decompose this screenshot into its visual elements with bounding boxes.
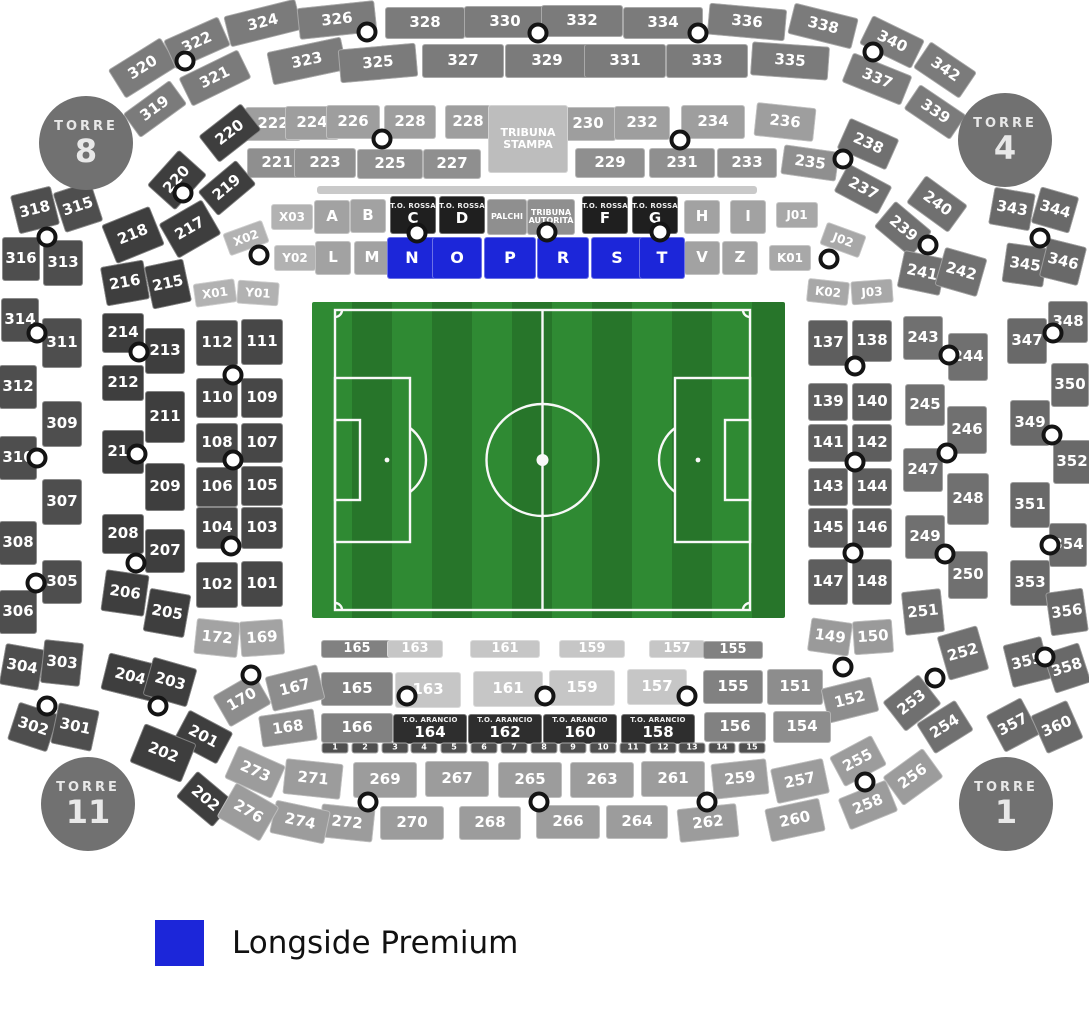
section-309[interactable]: 309	[42, 401, 82, 447]
section-260[interactable]: 260	[764, 798, 826, 843]
section-165[interactable]: 165	[321, 672, 393, 706]
gate-marker	[688, 23, 709, 44]
gate-marker	[1030, 228, 1051, 249]
gate-marker	[843, 543, 864, 564]
section-261[interactable]: 261	[641, 761, 705, 797]
section-140[interactable]: 140	[852, 383, 892, 421]
section-3[interactable]: 3	[382, 743, 409, 754]
section-259[interactable]: 259	[710, 758, 769, 800]
section-360[interactable]: 360	[1030, 700, 1084, 755]
section-243[interactable]: 243	[903, 316, 943, 360]
section-227[interactable]: 227	[423, 149, 481, 179]
section-248[interactable]: 248	[947, 473, 989, 525]
section-332[interactable]: 332	[541, 5, 623, 37]
section-d[interactable]: T.O. ROSSAD	[439, 196, 485, 234]
section-j01[interactable]: J01	[776, 202, 818, 228]
section-168[interactable]: 168	[258, 708, 318, 747]
section-308[interactable]: 308	[0, 521, 37, 565]
section-10[interactable]: 10	[590, 743, 617, 754]
section-325[interactable]: 325	[338, 43, 419, 84]
section-a[interactable]: A	[314, 200, 350, 234]
section-z[interactable]: Z	[722, 241, 758, 275]
section-149[interactable]: 149	[807, 617, 853, 657]
section-y02[interactable]: Y02	[274, 245, 316, 271]
section-1[interactable]: 1	[322, 743, 349, 754]
gate-marker	[221, 536, 242, 557]
section-347[interactable]: 347	[1007, 318, 1047, 364]
section-v[interactable]: V	[684, 241, 720, 275]
legend-swatch-longside-premium	[155, 920, 204, 966]
section-158[interactable]: T.O. ARANCIO158	[621, 714, 695, 744]
section-x03[interactable]: X03	[271, 204, 313, 230]
gate-marker	[37, 696, 58, 717]
gate-marker	[535, 686, 556, 707]
section-103[interactable]: 103	[241, 507, 283, 549]
section-233[interactable]: 233	[717, 148, 777, 178]
gate-marker	[407, 223, 428, 244]
section-353[interactable]: 353	[1010, 560, 1050, 606]
section-331[interactable]: 331	[584, 44, 666, 78]
section-145[interactable]: 145	[808, 508, 848, 548]
section-h[interactable]: H	[684, 200, 720, 234]
section-154[interactable]: 154	[773, 711, 831, 743]
section-9[interactable]: 9	[560, 743, 587, 754]
gate-marker	[173, 183, 194, 204]
section-172[interactable]: 172	[193, 618, 241, 658]
section-228[interactable]: 228	[445, 105, 491, 139]
section-270[interactable]: 270	[380, 806, 444, 840]
gate-marker	[537, 222, 558, 243]
section-7[interactable]: 7	[501, 743, 528, 754]
section-107[interactable]: 107	[241, 423, 283, 463]
section-j03[interactable]: J03	[850, 279, 894, 306]
legend-label: Longside Premium	[232, 925, 518, 961]
section-n[interactable]: N	[387, 237, 437, 279]
section-357[interactable]: 357	[985, 697, 1040, 753]
section-225[interactable]: 225	[357, 149, 423, 179]
section-l[interactable]: L	[315, 241, 351, 275]
legend: Longside Premium	[155, 920, 518, 966]
gate-marker	[863, 42, 884, 63]
section-162[interactable]: T.O. ARANCIO162	[468, 714, 542, 744]
section-i[interactable]: I	[730, 200, 766, 234]
gate-marker	[241, 665, 262, 686]
gate-marker	[529, 792, 550, 813]
tower-8: TORRE8	[39, 96, 133, 190]
section-151[interactable]: 151	[767, 669, 823, 705]
gate-marker	[223, 450, 244, 471]
section-167[interactable]: 167	[264, 664, 325, 712]
section-15[interactable]: 15	[739, 743, 766, 754]
section-311[interactable]: 311	[42, 318, 82, 368]
gate-marker	[127, 444, 148, 465]
section-101[interactable]: 101	[241, 561, 283, 607]
section-t[interactable]: T	[639, 237, 685, 279]
section-264[interactable]: 264	[606, 805, 668, 839]
section-147[interactable]: 147	[808, 559, 848, 605]
section-5[interactable]: 5	[441, 743, 468, 754]
gate-marker	[939, 345, 960, 366]
section-tribuna-stampa[interactable]: TRIBUNA STAMPA	[488, 105, 568, 173]
section-301[interactable]: 301	[50, 702, 100, 752]
section-139[interactable]: 139	[808, 383, 848, 421]
section-231[interactable]: 231	[649, 148, 715, 178]
section-112[interactable]: 112	[196, 320, 238, 366]
section-159[interactable]: 159	[549, 670, 615, 706]
gate-marker	[845, 356, 866, 377]
section-271[interactable]: 271	[282, 758, 343, 800]
gate-marker	[26, 573, 47, 594]
stadium-map: Longside Premium 31932032132232332432532…	[0, 0, 1089, 1032]
gate-marker	[372, 129, 393, 150]
section-209[interactable]: 209	[145, 463, 185, 511]
section-159[interactable]: 159	[559, 640, 625, 658]
section-6[interactable]: 6	[471, 743, 498, 754]
section-251[interactable]: 251	[901, 588, 945, 636]
gate-marker	[357, 22, 378, 43]
section-2[interactable]: 2	[352, 743, 379, 754]
section-208[interactable]: 208	[102, 514, 144, 554]
section-band[interactable]	[317, 186, 757, 194]
section-211[interactable]: 211	[145, 391, 185, 443]
section-y01[interactable]: Y01	[236, 280, 280, 307]
section-13[interactable]: 13	[679, 743, 706, 754]
tower-1: TORRE1	[959, 757, 1053, 851]
pitch-markings	[312, 302, 785, 618]
gate-marker	[175, 51, 196, 72]
tower-11: TORRE11	[41, 757, 135, 851]
section-234[interactable]: 234	[681, 105, 745, 139]
section-12[interactable]: 12	[650, 743, 677, 754]
section-268[interactable]: 268	[459, 806, 521, 840]
section-336[interactable]: 336	[707, 3, 787, 42]
section-137[interactable]: 137	[808, 320, 848, 366]
gate-marker	[126, 553, 147, 574]
section-350[interactable]: 350	[1051, 363, 1089, 407]
section-267[interactable]: 267	[425, 761, 489, 797]
gate-marker	[528, 23, 549, 44]
section-102[interactable]: 102	[196, 562, 238, 608]
gate-marker	[935, 544, 956, 565]
gate-marker	[925, 668, 946, 689]
section-156[interactable]: 156	[704, 712, 766, 742]
section-305[interactable]: 305	[42, 560, 82, 604]
section-207[interactable]: 207	[145, 529, 185, 573]
section-338[interactable]: 338	[787, 2, 859, 49]
section-x01[interactable]: X01	[193, 278, 238, 308]
section-161[interactable]: 161	[470, 640, 540, 658]
section-163[interactable]: 163	[387, 640, 443, 658]
gate-marker	[1035, 647, 1056, 668]
section-228[interactable]: 228	[384, 105, 436, 139]
section-213[interactable]: 213	[145, 328, 185, 374]
section-230[interactable]: 230	[560, 107, 616, 141]
section-106[interactable]: 106	[196, 467, 238, 507]
gate-marker	[650, 222, 671, 243]
section-4[interactable]: 4	[411, 743, 438, 754]
section-205[interactable]: 205	[142, 588, 191, 639]
section-343[interactable]: 343	[988, 187, 1036, 232]
gate-marker	[37, 227, 58, 248]
section-356[interactable]: 356	[1045, 588, 1089, 637]
section-144[interactable]: 144	[852, 468, 892, 506]
section-k01[interactable]: K01	[769, 245, 811, 271]
gate-marker	[1043, 323, 1064, 344]
section-215[interactable]: 215	[144, 258, 192, 309]
gate-marker	[833, 149, 854, 170]
section-218[interactable]: 218	[101, 206, 165, 264]
section-157[interactable]: 157	[649, 640, 705, 658]
gate-marker	[249, 245, 270, 266]
section-155[interactable]: 155	[703, 670, 763, 704]
section-165[interactable]: 165	[321, 640, 393, 658]
gate-marker	[833, 657, 854, 678]
section-303[interactable]: 303	[40, 639, 84, 687]
gate-marker	[918, 235, 939, 256]
section-150[interactable]: 150	[852, 619, 894, 656]
gate-marker	[845, 452, 866, 473]
section-237[interactable]: 237	[833, 163, 892, 215]
section-257[interactable]: 257	[770, 758, 830, 804]
section-312[interactable]: 312	[0, 365, 37, 409]
section-306[interactable]: 306	[0, 590, 37, 634]
gate-marker	[27, 323, 48, 344]
section-105[interactable]: 105	[241, 466, 283, 506]
section-329[interactable]: 329	[505, 44, 589, 78]
section-166[interactable]: 166	[321, 713, 393, 743]
section-327[interactable]: 327	[422, 44, 504, 78]
section-236[interactable]: 236	[753, 102, 816, 142]
gate-marker	[937, 443, 958, 464]
section-k02[interactable]: K02	[806, 278, 850, 306]
gate-marker	[670, 130, 691, 151]
gate-marker	[1042, 425, 1063, 446]
section-f[interactable]: T.O. ROSSAF	[582, 196, 628, 234]
gate-marker	[148, 696, 169, 717]
section-o[interactable]: O	[432, 237, 482, 279]
section-111[interactable]: 111	[241, 319, 283, 365]
section-143[interactable]: 143	[808, 468, 848, 506]
section-148[interactable]: 148	[852, 559, 892, 605]
section-109[interactable]: 109	[241, 378, 283, 418]
section-155[interactable]: 155	[703, 641, 763, 659]
section-160[interactable]: T.O. ARANCIO160	[543, 714, 617, 744]
section-223[interactable]: 223	[294, 148, 356, 178]
section-palchi[interactable]: PALCHI	[487, 199, 527, 235]
section-206[interactable]: 206	[100, 569, 149, 617]
gate-marker	[855, 772, 876, 793]
section-307[interactable]: 307	[42, 479, 82, 525]
section-352[interactable]: 352	[1053, 440, 1089, 484]
section-265[interactable]: 265	[498, 762, 562, 798]
section-164[interactable]: T.O. ARANCIO164	[393, 714, 467, 744]
section-s[interactable]: S	[591, 237, 643, 279]
section-242[interactable]: 242	[934, 247, 987, 298]
section-169[interactable]: 169	[239, 619, 285, 658]
section-m[interactable]: M	[354, 241, 390, 275]
section-161[interactable]: 161	[473, 671, 543, 707]
section-141[interactable]: 141	[808, 424, 848, 462]
section-b[interactable]: B	[350, 199, 386, 233]
section-263[interactable]: 263	[570, 762, 634, 798]
section-351[interactable]: 351	[1010, 482, 1050, 528]
section-p[interactable]: P	[484, 237, 536, 279]
gate-marker	[677, 686, 698, 707]
section-316[interactable]: 316	[2, 237, 40, 281]
section-14[interactable]: 14	[709, 743, 736, 754]
section-304[interactable]: 304	[0, 643, 45, 691]
gate-marker	[697, 792, 718, 813]
gate-marker	[397, 686, 418, 707]
section-323[interactable]: 323	[266, 36, 347, 85]
gate-marker	[1040, 535, 1061, 556]
section-232[interactable]: 232	[614, 106, 670, 140]
gate-marker	[819, 249, 840, 270]
gate-marker	[129, 342, 150, 363]
section-328[interactable]: 328	[385, 7, 465, 39]
section-229[interactable]: 229	[575, 148, 645, 178]
section-11[interactable]: 11	[620, 743, 647, 754]
section-216[interactable]: 216	[100, 259, 150, 306]
section-235[interactable]: 235	[780, 144, 840, 182]
football-pitch	[312, 302, 785, 618]
section-146[interactable]: 146	[852, 508, 892, 548]
tower-4: TORRE4	[958, 93, 1052, 187]
section-245[interactable]: 245	[905, 384, 945, 426]
section-333[interactable]: 333	[666, 44, 748, 78]
section-335[interactable]: 335	[750, 41, 830, 80]
section-8[interactable]: 8	[531, 743, 558, 754]
gate-marker	[27, 448, 48, 469]
gate-marker	[223, 365, 244, 386]
section-r[interactable]: R	[537, 237, 589, 279]
section-212[interactable]: 212	[102, 365, 144, 401]
gate-marker	[358, 792, 379, 813]
section-324[interactable]: 324	[223, 0, 303, 47]
